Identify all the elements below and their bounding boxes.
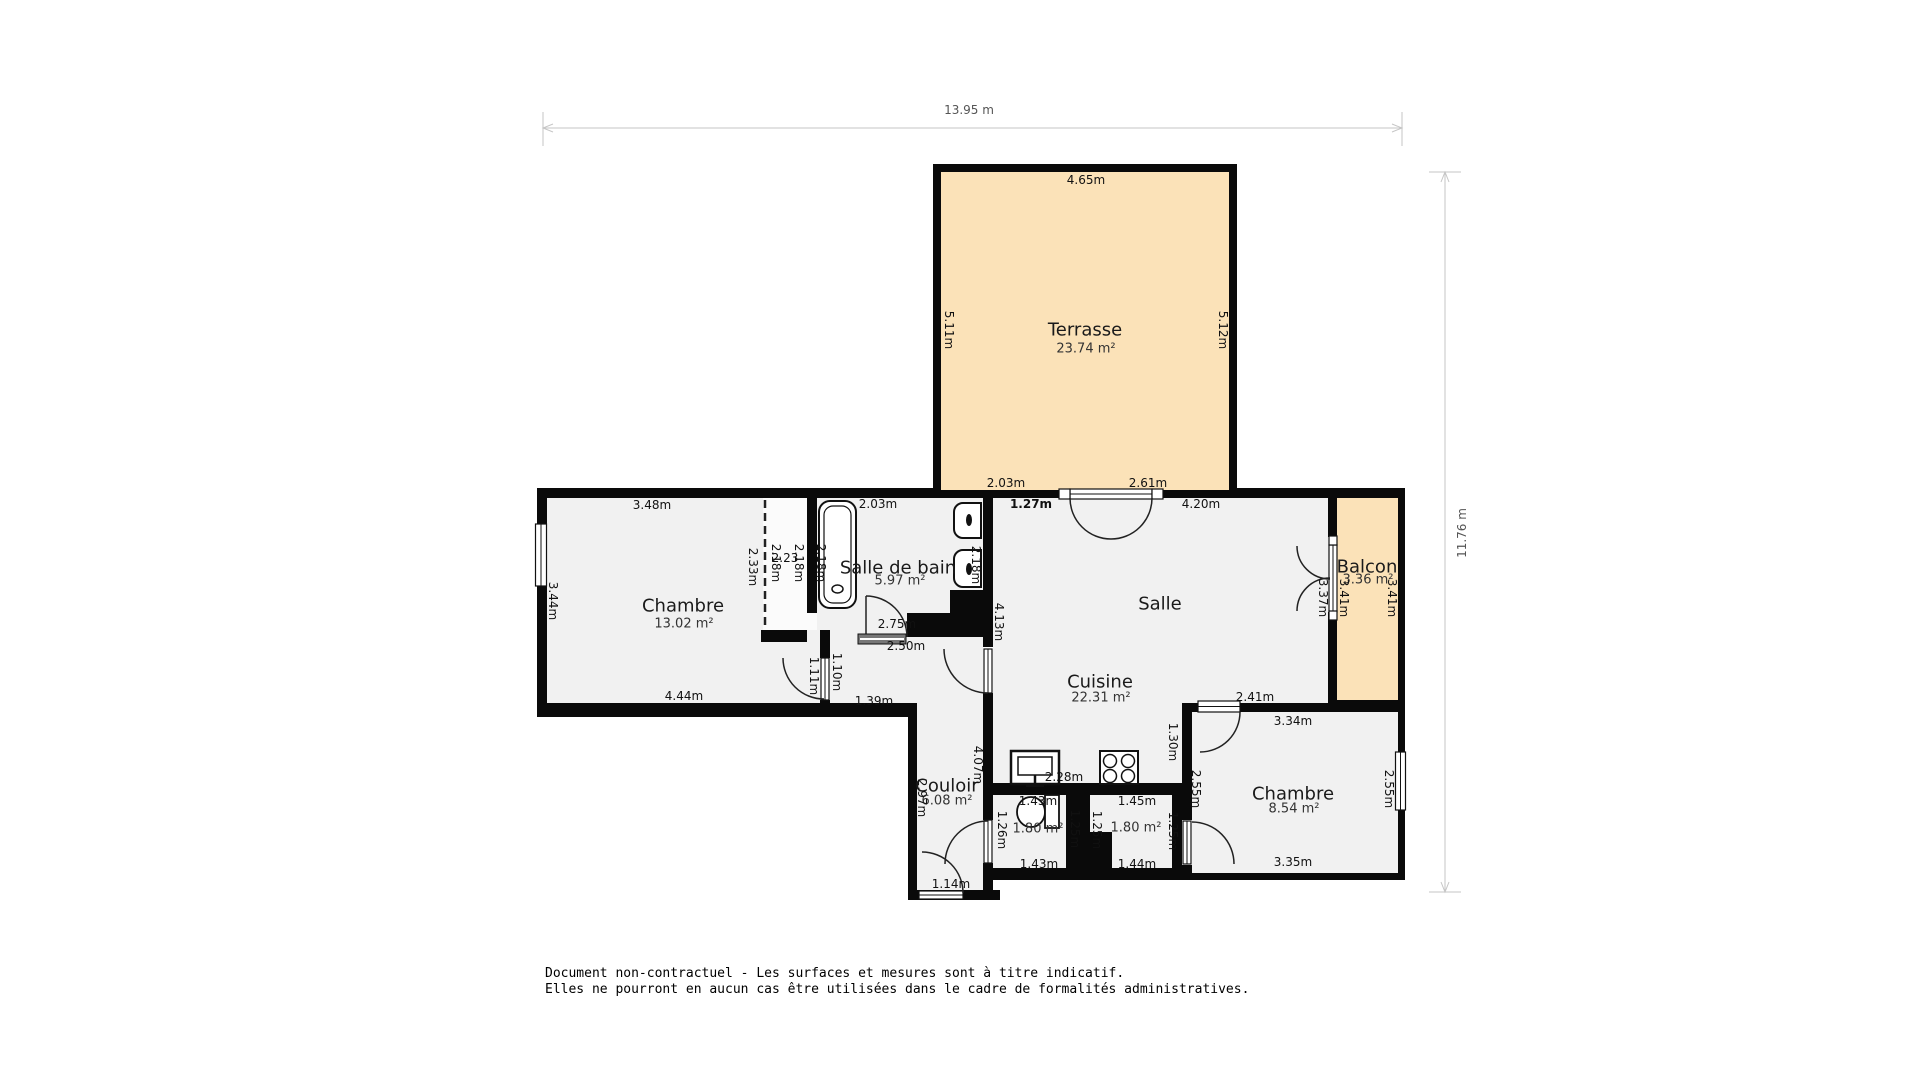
measurement-label: 1.10m <box>830 653 844 691</box>
measurement-label: 1.25m <box>1166 812 1180 850</box>
measurement-label: 3.35m <box>1274 855 1312 869</box>
measurement-label: 2.28m <box>1045 770 1083 784</box>
measurement-label: 1.25m <box>1090 811 1104 849</box>
disclaimer-text: Document non-contractuel - Les surfaces … <box>545 966 1249 998</box>
measurement-label: 2.18m <box>814 544 828 582</box>
wall <box>1182 873 1405 880</box>
wall <box>907 613 983 637</box>
measurement-label: 1.45m <box>1118 794 1156 808</box>
measurement-label: 2.41m <box>1236 690 1274 704</box>
measurement-label: 1.43m <box>1020 857 1058 871</box>
measurement-label: 2.97m <box>915 779 929 817</box>
measurement-label: 4.07m <box>971 746 985 784</box>
room-label-terrasse: Terrasse <box>1048 320 1122 341</box>
wall <box>761 630 807 642</box>
measurement-label: 3.41m <box>1337 579 1351 617</box>
measurement-label: 2.50m <box>887 639 925 653</box>
disclaimer-line-2: Elles ne pourront en aucun cas être util… <box>545 982 1249 998</box>
dimension-line-horizontal <box>543 112 1402 146</box>
room-area-salle-de-bain: 5.97 m² <box>875 574 926 589</box>
measurement-label: 1.27m <box>1010 497 1052 511</box>
measurement-label: 3.41m <box>1385 579 1399 617</box>
measurement-label: 4.65m <box>1067 173 1105 187</box>
wall <box>1182 865 1192 873</box>
room-area-chambre1: 13.02 m² <box>654 617 713 632</box>
measurement-label: 2.61m <box>1129 476 1167 490</box>
room-area-couloir: 6.08 m² <box>922 794 973 809</box>
wall <box>1398 488 1405 880</box>
measurement-label: 3.37m <box>1316 579 1330 617</box>
measurement-label: 3.34m <box>1274 714 1312 728</box>
measurement-label: 2.18m <box>792 544 806 582</box>
measurement-label: 2.03m <box>987 476 1025 490</box>
measurement-label: 2.33m <box>746 548 760 586</box>
room-label-cuisine: Cuisine <box>1067 672 1133 693</box>
measurement-label: 2.03m <box>859 497 897 511</box>
measurement-label: 3.48m <box>633 498 671 512</box>
total-height-label: 11.76 m <box>1455 508 1469 558</box>
wall <box>983 863 993 900</box>
wall <box>1230 488 1405 498</box>
wall <box>1182 703 1198 712</box>
measurement-label: 2.55m <box>1382 770 1396 808</box>
measurement-label: 1.44m <box>1118 857 1156 871</box>
measurement-label: 1.14m <box>932 877 970 891</box>
measurement-label: 1.11m <box>807 657 821 695</box>
room-label-salle: Salle <box>1138 594 1182 615</box>
room-area-cuisine: 22.31 m² <box>1071 691 1130 706</box>
measurement-label: 3.44m <box>546 582 560 620</box>
measurement-label: 2.75m <box>878 617 916 631</box>
disclaimer-line-1: Document non-contractuel - Les surfaces … <box>545 966 1249 982</box>
measurement-label: 4.20m <box>1182 497 1220 511</box>
measurement-label: 1.26m <box>995 811 1009 849</box>
floor-plan: 13.95 m 11.76 m Terrasse 23.74 m² Chambr… <box>0 0 1920 1080</box>
total-width-label: 13.95 m <box>944 103 994 117</box>
measurement-label: 1.43m <box>1019 794 1057 808</box>
room-label-chambre1: Chambre <box>642 596 724 617</box>
wall <box>820 700 830 717</box>
room-area-wc2: 1.80 m² <box>1111 821 1162 836</box>
measurement-label: 4.13m <box>992 603 1006 641</box>
measurement-label: 5.12m <box>1216 311 1230 349</box>
wall <box>1328 612 1337 708</box>
wall <box>820 630 830 658</box>
measurement-label: 2.55m <box>1189 770 1203 808</box>
measurement-label: 1.25m <box>1068 810 1082 848</box>
room-area-chambre2: 8.54 m² <box>1269 802 1320 817</box>
measurement-label: 2.18m <box>969 546 983 584</box>
measurement-label: 1.39m <box>855 694 893 708</box>
measurement-label: 5.11m <box>942 311 956 349</box>
wall <box>1240 703 1405 712</box>
measurement-label: 1.30m <box>1166 723 1180 761</box>
wall <box>950 590 983 613</box>
room-area-wc1: 1.80 m² <box>1013 822 1064 837</box>
room-area-terrasse: 23.74 m² <box>1056 342 1115 357</box>
measurement-label: 4.44m <box>665 689 703 703</box>
wall <box>1328 498 1337 537</box>
